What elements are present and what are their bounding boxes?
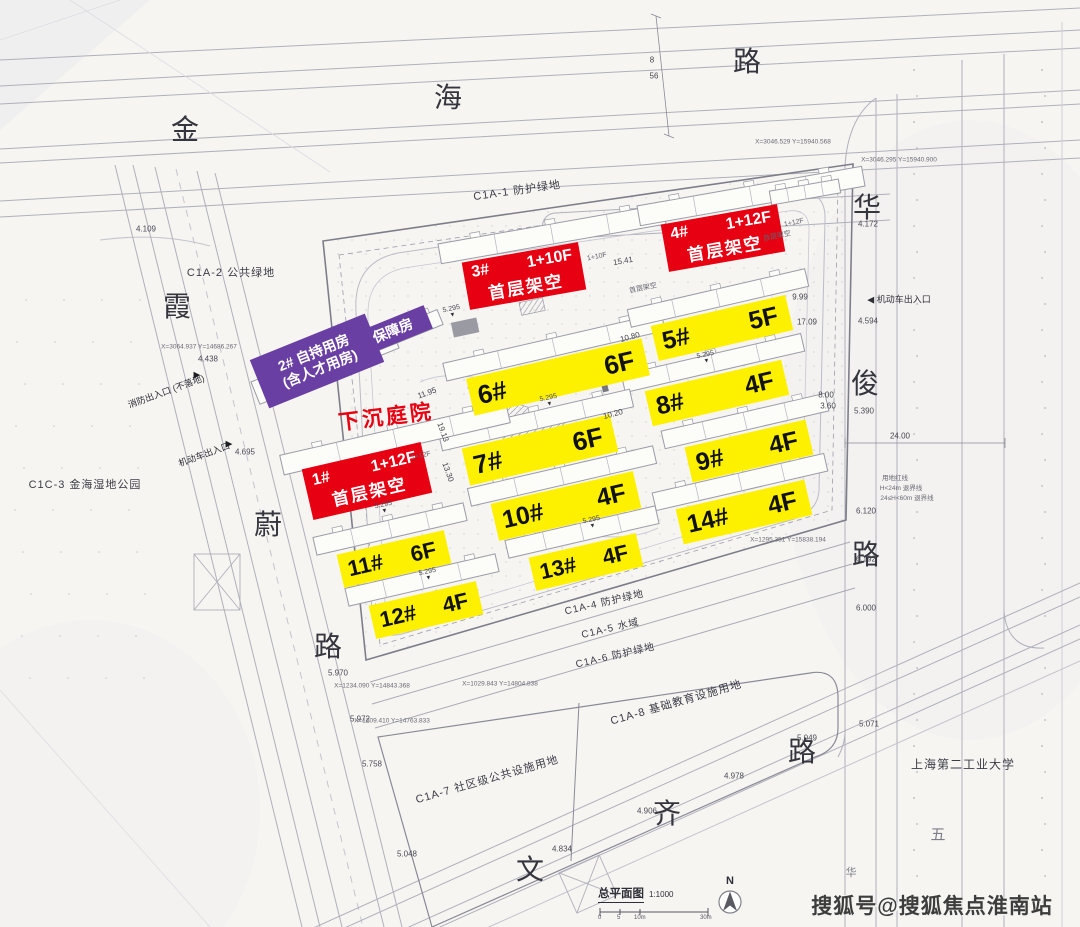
building-number: 9# [693,443,727,478]
micro-annotation: X=1209.410 Y=14763.833 [354,718,430,725]
building-number: 12# [377,600,419,634]
dimension-label: 56 [650,72,659,81]
building-number: 10# [499,497,546,535]
micro-annotation: X=3046.529 Y=15940.568 [755,139,831,146]
spot-elevation: 4.438 [198,355,218,364]
building-number: 8# [653,387,687,422]
building-floors: 4F [600,540,631,571]
building-number: 13# [537,552,579,586]
svg-text:10m: 10m [634,915,646,920]
entrance-arrow-icon: ▶ [194,370,201,381]
north-arrow-icon [715,887,745,917]
spot-elevation: 4.695 [235,448,255,457]
spot-elevation: 4.906 [637,807,657,816]
spot-elevation: 5.970 [328,669,348,678]
dimension-label: 17.09 [797,318,817,327]
north-arrow: N [714,876,746,918]
dimension-label: 9.99 [792,293,808,302]
spot-elevation: 6.120 [856,507,876,516]
micro-annotation: X=3046.295 Y=15940.900 [861,157,937,164]
zone-label: C1A-2 公共绿地 [187,264,275,280]
plan-title: 总平面图 [598,885,644,903]
building-number: 14# [684,502,731,540]
zone-label: 上海第二工业大学 [911,756,1015,773]
building-number: 5# [659,321,693,356]
micro-annotation: X=1234.090 Y=14843.368 [334,683,410,690]
parcel-divider [571,703,579,861]
watermark: 搜狐号@搜狐焦点淮南站 [811,890,1052,920]
spot-elevation: 5.390 [854,407,874,416]
building-floors: 4F [594,478,629,513]
level-triangle-icon: ▼ [425,575,432,582]
level-triangle-icon: ▼ [703,358,710,365]
level-triangle-icon: ▼ [449,312,456,319]
svg-text:30m: 30m [700,915,712,920]
building-floors: 5F [746,301,781,336]
spot-elevation: 4.172 [858,220,878,229]
building-number: 7# [470,444,505,481]
micro-annotation: 用地红线 [882,472,908,482]
micro-annotation: H<24m 退界线 [880,482,922,492]
level-triangle-icon: ▼ [589,523,596,530]
paper-shade [0,0,150,130]
road-name-char: 路 [314,625,342,665]
micro-annotation: 24≤H<60m 退界线 [880,492,933,502]
spot-elevation: 5.758 [362,760,382,769]
spot-elevation: 6.000 [856,604,876,613]
spot-elevation: 5.048 [397,850,417,859]
north-letter: N [714,876,746,887]
title-block: 总平面图 1:1000 0 5 10m 30m [598,885,718,925]
dimension-label: 8 [650,56,654,65]
micro-annotation: X=3064.937 Y=14686.267 [161,344,237,351]
level-triangle-icon: ▼ [546,401,553,408]
scale-bar: 0 5 10m 30m [598,906,718,920]
road-name-char: 海 [434,76,462,116]
building-floors: 6F [601,344,638,381]
zone-label: C1C-3 金海湿地公园 [29,476,142,492]
road-name-char: 金 [171,108,199,148]
svg-text:0: 0 [598,915,602,920]
road-name-char: 路 [852,533,880,573]
spot-elevation: 5.071 [859,720,879,729]
building-number: 11# [345,549,385,582]
dimension-label: 8.00 [818,391,834,400]
spot-elevation: 6.192 [856,555,876,564]
road-name-char-minor: 五 [930,824,945,845]
spot-elevation: 4.594 [858,317,878,326]
dimension-label: 3.60 [820,402,836,411]
plan-scale: 1:1000 [649,890,673,899]
road-name-char: 路 [733,40,761,80]
building-floors: 6F [408,537,439,568]
road-name-char: 蔚 [254,503,282,543]
spot-elevation: 5.049 [797,734,817,743]
road-name-char: 霞 [163,285,191,325]
svg-text:5: 5 [617,915,621,920]
dimension-label: 24.00 [890,432,910,441]
micro-annotation: X=1029.843 Y=14804.838 [462,681,538,688]
building-floors: 4F [766,426,801,461]
spot-elevation: 4.978 [724,772,744,781]
level-triangle-icon: ▼ [381,508,388,515]
site-plan-canvas: 金海路霞蔚路华俊路文齐路五华C1A-1 防护绿地C1A-2 公共绿地C1C-3 … [0,0,1080,927]
entrance-label: ◀ 机动车出入口 [867,293,930,306]
road-name-char: 齐 [653,792,681,832]
road-name-char-minor: 华 [846,864,857,880]
road-name-char: 文 [516,848,544,888]
building-floors: 4F [440,588,471,619]
building-floors: 4F [765,486,800,521]
road-name-char: 俊 [851,362,879,402]
building-floors: 4F [742,366,777,401]
entrance-arrow-icon: ▶ [226,439,233,450]
building-floors: 6F [569,421,606,458]
building-number: 6# [475,374,510,411]
spot-elevation: 4.109 [136,225,156,234]
micro-annotation: X=1295.351 Y=15838.194 [750,537,826,544]
spot-elevation: 4.834 [552,845,572,854]
